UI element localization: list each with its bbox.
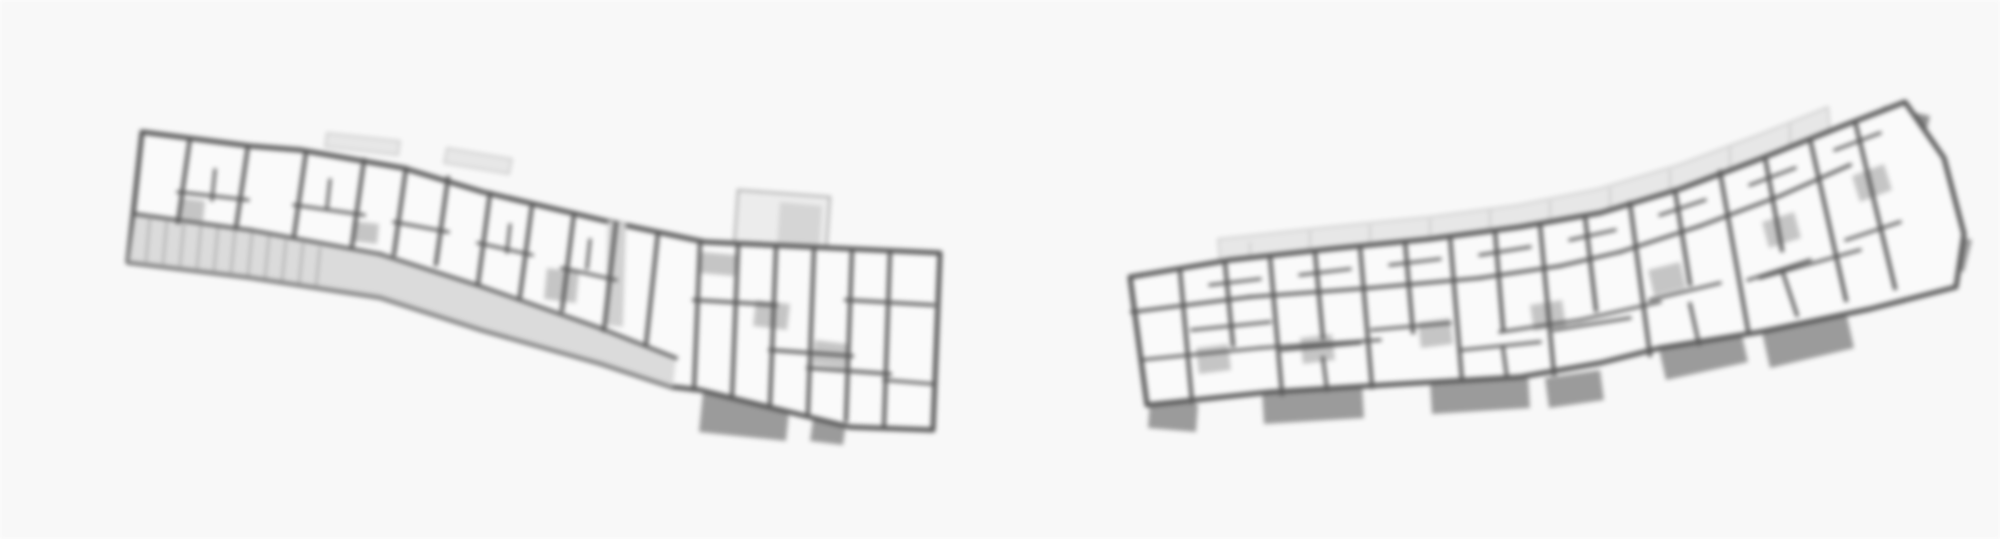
floor-plan-image xyxy=(0,0,2000,539)
roof-annex-core xyxy=(777,202,822,250)
floor-plan-canvas xyxy=(0,0,2000,539)
gray-patch xyxy=(1196,344,1231,374)
gray-patch xyxy=(544,268,579,303)
gray-patch xyxy=(700,252,736,276)
gray-patch xyxy=(181,198,205,221)
